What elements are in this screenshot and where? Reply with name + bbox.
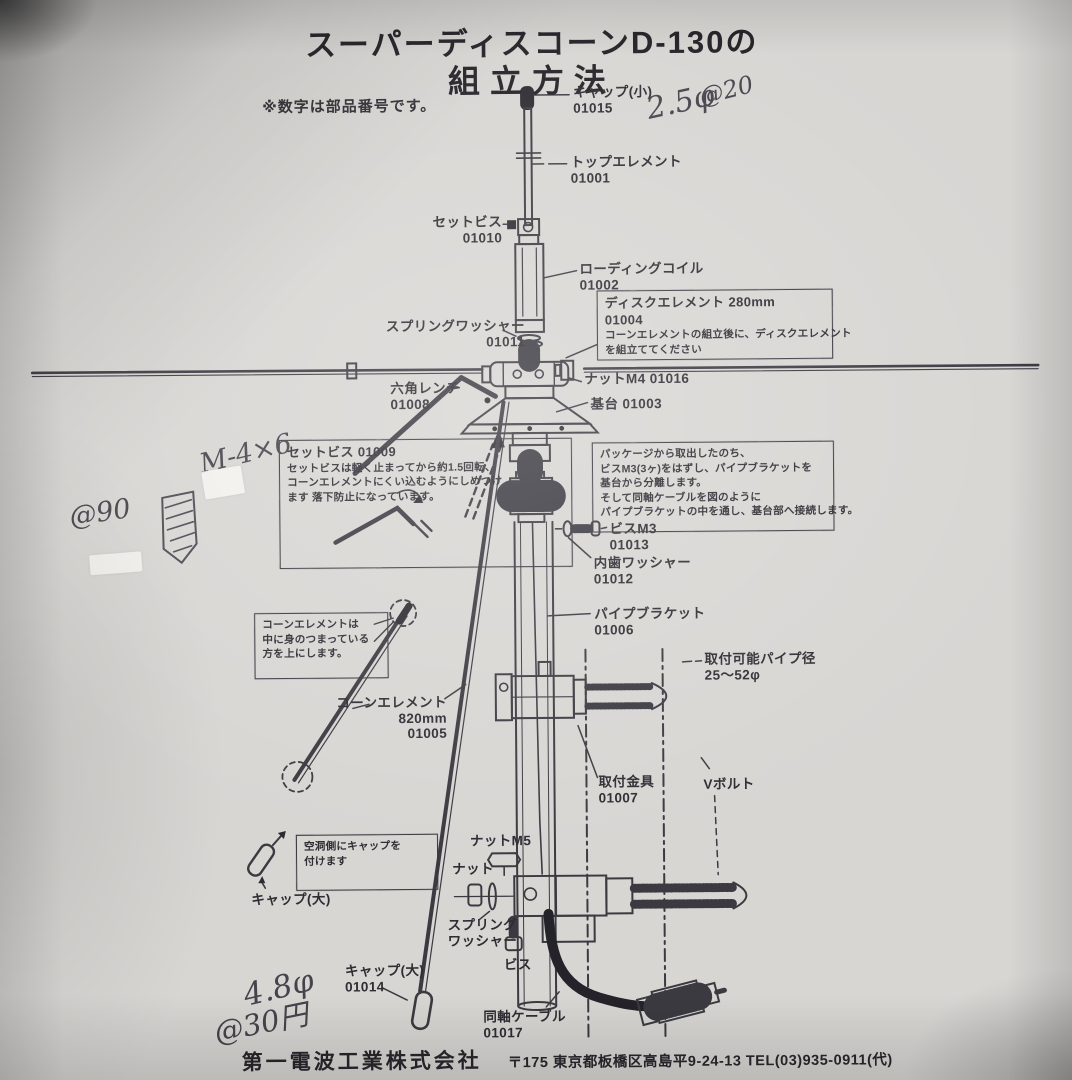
part-label-top-element: トップエレメント01001 bbox=[571, 154, 682, 186]
note-box-cap-note: 空洞側にキャップを付けます bbox=[296, 834, 438, 891]
printed-sheet-content: スーパーディスコーンD-130の 組立方法 ※数字は部品番号です。 キャップ(小… bbox=[0, 0, 1072, 1080]
text-layer: スーパーディスコーンD-130の 組立方法 ※数字は部品番号です。 キャップ(小… bbox=[0, 0, 1072, 1080]
footer-line: 第一電波工業株式会社〒175 東京都板橋区高島平9-24-13 TEL(03)9… bbox=[242, 1041, 893, 1076]
part-label-cap-large: キャップ(大) bbox=[251, 892, 330, 908]
tape-patch bbox=[89, 551, 142, 575]
part-label-loading-coil: ローディングコイル01002 bbox=[579, 261, 703, 293]
part-label-hex-wrench: 六角レンチ01008 bbox=[390, 381, 460, 413]
part-label-nut-m4: ナットM4 01016 bbox=[584, 371, 689, 387]
part-label-cone-element: コーンエレメント820mm01005 bbox=[336, 695, 447, 742]
note-box-disc-element-box: ディスクエレメント 280mm01004コーンエレメントの組立後に、ディスクエレ… bbox=[597, 289, 834, 361]
note-box-cone-element-note: コーンエレメントは中に身のつまっている方を上にします。 bbox=[254, 612, 389, 679]
part-label-mount-bracket: 取付金具01007 bbox=[598, 774, 654, 805]
handwritten-hw-at-90: @90 bbox=[67, 493, 132, 533]
parts-number-note: ※数字は部品番号です。 bbox=[262, 95, 436, 117]
note-box-set-screw-box: セットビス 01009セットビスは軽く止まってから約1.5回転、コーンエレメント… bbox=[279, 438, 573, 569]
footer-address: 〒175 東京都板橋区高島平9-24-13 TEL(03)935-0911(代) bbox=[508, 1052, 893, 1071]
note-boxes-layer: ディスクエレメント 280mm01004コーンエレメントの組立後に、ディスクエレ… bbox=[0, 0, 1067, 4]
part-label-mountable-pipe-dia: 取付可能パイプ径25〜52φ bbox=[704, 651, 815, 683]
tape-patch bbox=[201, 465, 245, 499]
part-label-spring-washer-2: スプリングワッシャー bbox=[448, 917, 518, 949]
part-label-nut: ナット bbox=[452, 861, 494, 877]
part-label-set-screw-01010: セットビス01010 bbox=[433, 214, 503, 246]
part-label-cap-large-01014: キャップ(大)01014 bbox=[345, 963, 425, 995]
part-label-v-bolt: Vボルト bbox=[703, 776, 754, 792]
part-label-nut-m5: ナットM5 bbox=[470, 833, 531, 849]
part-labels-layer: キャップ(小)01015トップエレメント01001セットビス01010ローディン… bbox=[0, 0, 1067, 4]
handwritten-layer: 2.5φ@20M-4×6@904.8φ@30円 bbox=[0, 0, 1067, 4]
footer-company: 第一電波工業株式会社 bbox=[242, 1049, 482, 1074]
part-label-coax-cable: 同軸ケーブル01017 bbox=[483, 1009, 566, 1041]
doc-title-line2: 組立方法 bbox=[0, 52, 1068, 106]
note-box-pipe-bracket-box: パッケージから取出したのち、ビスM3(3ヶ)をはずし、パイプブラケットを基台から… bbox=[592, 441, 835, 533]
part-label-pipe-bracket: パイプブラケット01006 bbox=[594, 606, 705, 638]
photo-of-assembly-sheet: スーパーディスコーンD-130の 組立方法 ※数字は部品番号です。 キャップ(小… bbox=[0, 0, 1072, 1080]
part-label-screw: ビス bbox=[504, 957, 532, 973]
part-label-inner-tooth-washer: 内歯ワッシャー01012 bbox=[594, 555, 692, 587]
part-label-cap-small: キャップ(小)01015 bbox=[573, 84, 653, 116]
part-label-base: 基台 01003 bbox=[590, 396, 662, 412]
handwritten-hw-at-30-yen: @30円 bbox=[210, 991, 311, 1051]
part-label-spring-washer-01011: スプリングワッシャー01011 bbox=[386, 318, 525, 350]
